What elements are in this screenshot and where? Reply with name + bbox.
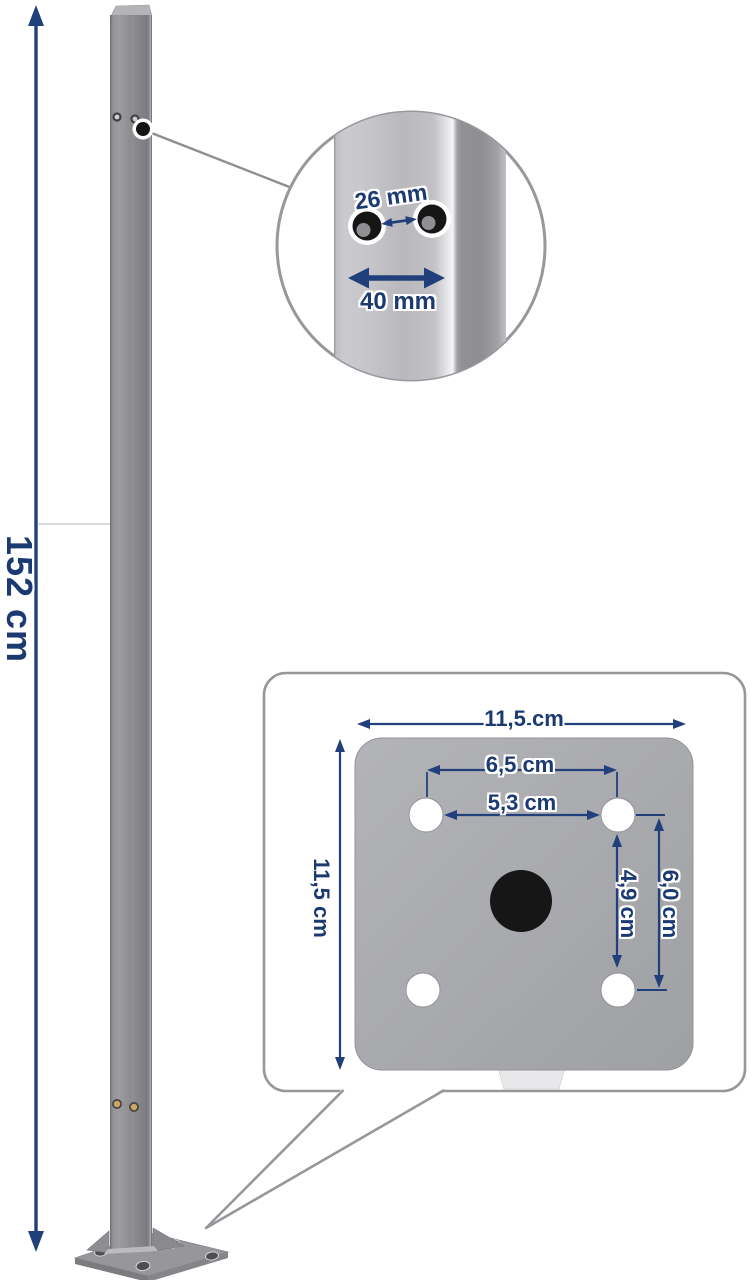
plate-hole: [409, 798, 443, 832]
plate-hole: [601, 973, 635, 1007]
plate-height-label: 11,5 cm: [310, 858, 332, 938]
hole-offset-vertical-label: 4,9 cm: [617, 870, 639, 939]
arrow-up-icon: [28, 5, 44, 26]
plate-hole: [406, 973, 440, 1007]
detail-circle-callout: [277, 106, 545, 390]
gusset-left: [87, 1231, 109, 1253]
plate-width-label: 11,5 cm: [484, 708, 564, 730]
product-dimension-diagram: 152 cm 26 mm 40 mm 11,5 cm 11,5 cm 6,5 c…: [0, 0, 750, 1280]
base-plate-callout: [206, 673, 745, 1228]
hole-spacing-inner-label: 5,3 cm: [488, 792, 557, 814]
leader-anchor-dot: [136, 122, 150, 136]
post-width-label: 40 mm: [360, 290, 436, 314]
post-photo: [87, 5, 184, 1254]
arrow-down-icon: [28, 1231, 44, 1252]
magnified-post: [334, 106, 506, 390]
hole-spacing-vertical-label: 6,0 cm: [659, 870, 681, 939]
height-dimension-label: 152 cm: [1, 535, 37, 663]
plate-center-hole: [490, 870, 552, 932]
hole-spacing-outer-label: 6,5 cm: [486, 754, 555, 776]
plate-hole: [601, 798, 635, 832]
detail-leader-line: [149, 132, 292, 188]
